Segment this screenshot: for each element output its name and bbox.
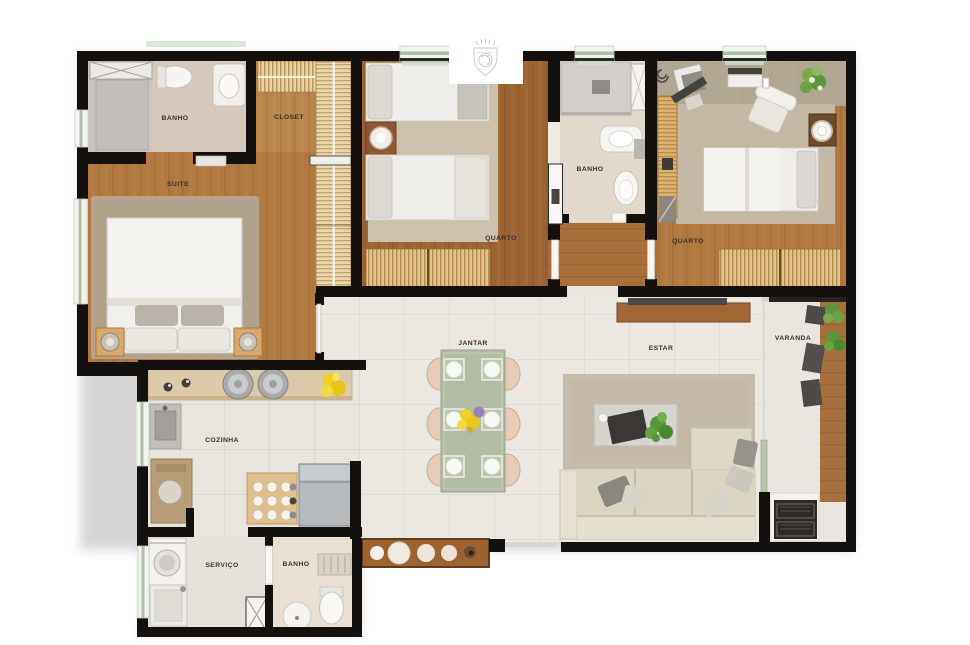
svg-text:JANTAR: JANTAR [458,340,487,347]
svg-text:SUITE: SUITE [167,181,189,188]
svg-text:VARANDA: VARANDA [775,335,811,342]
svg-text:BANHO: BANHO [577,166,604,173]
svg-text:CLOSET: CLOSET [274,114,304,121]
svg-text:BANHO: BANHO [283,561,310,568]
svg-text:ESTAR: ESTAR [649,345,674,352]
svg-text:SERVIÇO: SERVIÇO [205,562,238,569]
svg-text:QUARTO: QUARTO [672,238,704,245]
svg-text:QUARTO: QUARTO [485,235,517,242]
svg-text:COZINHA: COZINHA [205,437,239,444]
svg-text:BANHO: BANHO [162,115,189,122]
